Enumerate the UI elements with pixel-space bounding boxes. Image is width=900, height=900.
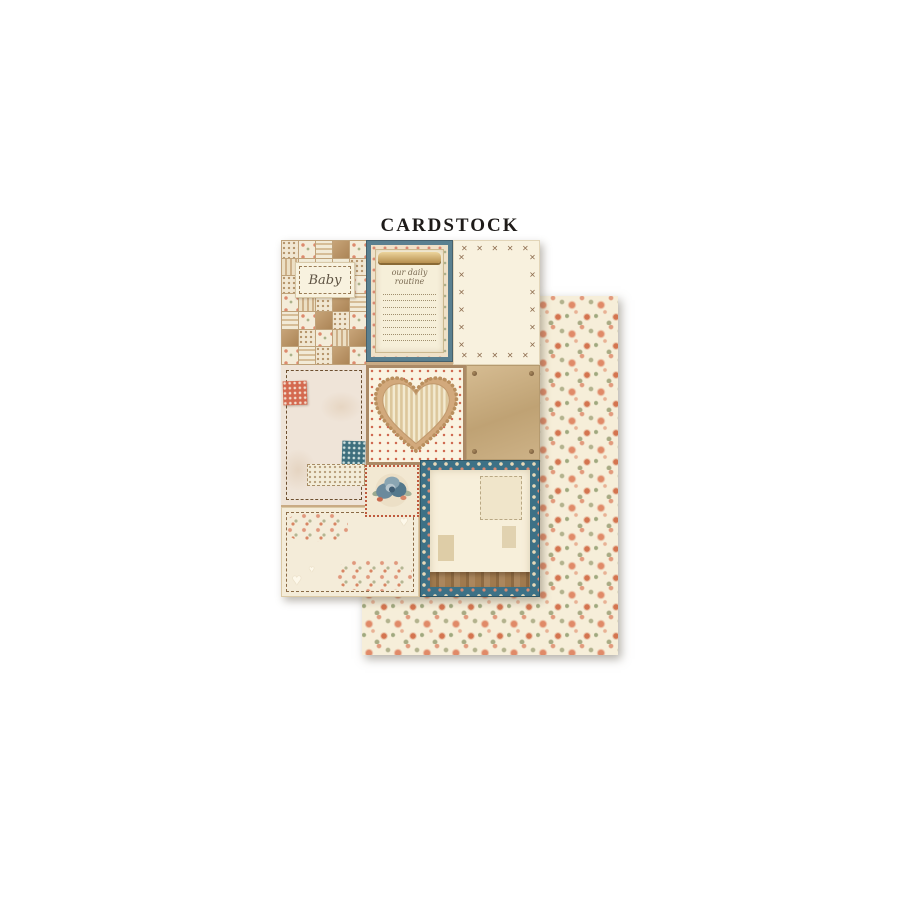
floral-corner-cluster	[286, 512, 348, 542]
brad-icon	[472, 371, 477, 376]
brad-icon	[529, 449, 534, 454]
dotted-strip-patch	[307, 464, 365, 486]
patch-square	[333, 347, 349, 364]
patch-square	[299, 330, 315, 347]
stitched-patch-panel	[281, 365, 367, 505]
notepad-panel: our daily routine	[366, 240, 453, 362]
patch-square	[316, 347, 332, 364]
patch-square	[316, 330, 332, 347]
notepad-lines	[383, 288, 436, 346]
notepad-line	[383, 306, 436, 308]
page-title: CARDSTOCK	[0, 215, 900, 237]
teal-frame-panel	[420, 460, 540, 597]
notepad-line	[383, 319, 436, 321]
patch-square	[282, 330, 298, 347]
teal-frame-paper	[430, 470, 530, 587]
patch-square	[316, 312, 332, 329]
tape-icon	[438, 535, 454, 561]
notepad-line	[383, 293, 436, 295]
patch-square	[299, 347, 315, 364]
cross-stitch-panel: ✕ ✕ ✕ ✕ ✕ ✕ ✕ ✕ ✕ ✕ ✕ ✕ ✕ ✕ ✕ ✕ ✕ ✕ ✕ ✕ …	[453, 240, 540, 365]
notepad-roll-icon	[378, 252, 441, 263]
bottom-left-panel: ♥♥♥	[281, 507, 419, 597]
wood-strip	[430, 572, 530, 587]
flower-square-panel	[365, 465, 419, 517]
stitch-border-right: ✕ ✕ ✕ ✕ ✕ ✕ ✕ ✕ ✕ ✕ ✕ ✕ ✕ ✕ ✕ ✕	[527, 253, 537, 352]
brad-icon	[472, 449, 477, 454]
heart-icon: ♥	[292, 572, 302, 590]
stitch-border-left: ✕ ✕ ✕ ✕ ✕ ✕ ✕ ✕ ✕ ✕ ✕ ✕ ✕ ✕ ✕ ✕	[456, 253, 466, 352]
patch-square	[282, 241, 298, 258]
patch-square	[350, 330, 366, 347]
kraft-panel	[466, 365, 540, 460]
heart-lace-icon	[372, 375, 460, 455]
heart-panel	[366, 365, 466, 465]
coral-dot-patch	[283, 381, 308, 406]
notepad-title: our daily routine	[376, 268, 443, 286]
notepad-line	[383, 339, 436, 341]
patch-square	[350, 347, 366, 364]
patch-square	[333, 312, 349, 329]
patch-square	[316, 241, 332, 258]
notepad-line	[383, 333, 436, 335]
front-collage-sheet: Baby our daily routine ✕ ✕ ✕ ✕ ✕ ✕ ✕ ✕ ✕…	[281, 240, 540, 597]
patch-square	[333, 241, 349, 258]
notepad-line	[383, 313, 436, 315]
patch-square	[350, 241, 366, 258]
baby-label: Baby	[295, 262, 355, 298]
notepad-line	[383, 299, 436, 301]
notepad-floral-mat: our daily routine	[371, 245, 448, 357]
patchwork-grid	[281, 240, 367, 365]
teal-dot-patch	[342, 441, 366, 467]
patch-square	[350, 312, 366, 329]
baby-label-text: Baby	[309, 273, 342, 288]
brad-icon	[529, 371, 534, 376]
product-photo: CARDSTOCK Baby our daily routine ✕ ✕ ✕ ✕…	[0, 0, 900, 900]
stitch-border-top: ✕ ✕ ✕ ✕ ✕ ✕ ✕ ✕ ✕ ✕ ✕ ✕ ✕ ✕ ✕ ✕	[461, 244, 536, 254]
notepad-line	[383, 326, 436, 328]
floral-corner-cluster	[336, 559, 412, 591]
heart-icon: ♥	[309, 564, 314, 574]
patch-square	[299, 241, 315, 258]
patch-square	[282, 347, 298, 364]
notepad-paper: our daily routine	[375, 249, 444, 353]
stamp-outline-icon	[480, 476, 522, 520]
patch-square	[299, 312, 315, 329]
patch-square	[333, 330, 349, 347]
stitch-border-bottom: ✕ ✕ ✕ ✕ ✕ ✕ ✕ ✕ ✕ ✕ ✕ ✕ ✕ ✕ ✕ ✕	[461, 351, 536, 361]
blue-flower-icon	[369, 469, 415, 513]
tape-icon	[502, 526, 516, 548]
patch-square	[282, 312, 298, 329]
